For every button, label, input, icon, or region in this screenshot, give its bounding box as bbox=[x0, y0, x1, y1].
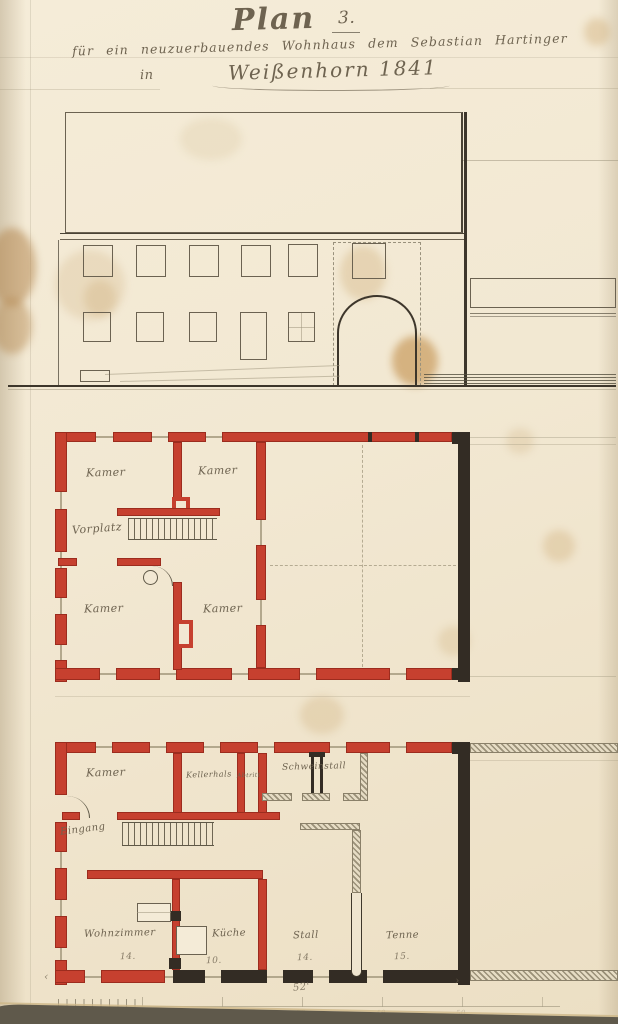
window-opening bbox=[267, 976, 283, 978]
gateway-arch bbox=[337, 295, 417, 386]
room-label-kellerhals: Kellerhals bbox=[186, 769, 232, 779]
room-label-stall: Stall bbox=[293, 930, 319, 942]
stain bbox=[543, 530, 575, 562]
window-opening bbox=[60, 852, 62, 868]
window-opening bbox=[96, 746, 112, 748]
window-opening bbox=[258, 746, 274, 748]
scale-major-tick bbox=[462, 997, 463, 1007]
ruled-line bbox=[0, 57, 618, 58]
title-underline-flourish bbox=[212, 80, 450, 91]
scale-major-tick bbox=[542, 997, 543, 1007]
ground-line bbox=[8, 385, 616, 387]
interior-wall bbox=[58, 558, 77, 566]
wall-segment bbox=[220, 742, 258, 753]
window-opening bbox=[232, 673, 248, 675]
wall-segment bbox=[55, 432, 67, 492]
wall-segment bbox=[346, 742, 390, 753]
wall-segment bbox=[406, 742, 452, 753]
forecourt-slope-line bbox=[105, 365, 340, 375]
stall-partition bbox=[311, 753, 314, 798]
ruled-line bbox=[0, 89, 160, 90]
interior-wall bbox=[237, 753, 245, 813]
wall-segment bbox=[55, 568, 67, 598]
window-opening bbox=[330, 746, 346, 748]
window-opening bbox=[204, 746, 220, 748]
pen-wall-hatched bbox=[360, 753, 368, 801]
window bbox=[83, 312, 111, 342]
wall-segment-existing bbox=[173, 970, 205, 983]
wall-tick bbox=[415, 432, 419, 442]
dim-total-width: 52' bbox=[292, 981, 310, 994]
title-plan-word: Plan bbox=[232, 1, 316, 38]
interior-wall bbox=[256, 545, 266, 600]
window-opening bbox=[367, 976, 383, 978]
room-label-tenne: Tenne bbox=[386, 930, 419, 942]
facade-right-edge bbox=[464, 112, 467, 386]
room-label-kamer-sw: Kamer bbox=[84, 601, 124, 615]
title-location-prefix: in bbox=[140, 68, 154, 83]
pencil-extension-line bbox=[470, 760, 618, 761]
wall-segment bbox=[55, 916, 67, 948]
tile-stove-line bbox=[137, 912, 171, 913]
interior-wall bbox=[258, 879, 267, 970]
pencil-extension-line bbox=[55, 696, 470, 697]
window bbox=[136, 245, 166, 277]
entrance-door bbox=[240, 312, 267, 360]
wall-segment bbox=[101, 970, 165, 983]
pencil-extension-line bbox=[463, 160, 618, 161]
wall-segment bbox=[406, 668, 452, 680]
window bbox=[189, 245, 219, 277]
existing-wall-hatched bbox=[470, 970, 618, 981]
room-label-kueche: Küche bbox=[212, 928, 246, 940]
neighbor-sill-line bbox=[470, 313, 616, 314]
room-label-kamer: Kamer bbox=[86, 765, 126, 779]
cellar-window bbox=[80, 370, 110, 382]
wall-segment bbox=[168, 432, 206, 442]
wall-segment bbox=[55, 742, 67, 795]
scale-major-tick bbox=[222, 997, 223, 1007]
plan-number-underline bbox=[332, 32, 360, 33]
wall-segment bbox=[55, 970, 85, 983]
window-opening bbox=[165, 976, 173, 978]
window-opening bbox=[60, 948, 62, 960]
window bbox=[189, 312, 217, 342]
dim-tenne: 15. bbox=[394, 952, 410, 962]
interior-wall bbox=[256, 442, 266, 520]
stain bbox=[300, 696, 344, 734]
door-opening bbox=[260, 520, 262, 545]
interior-wall bbox=[117, 508, 220, 516]
wall-segment bbox=[316, 668, 390, 680]
forecourt-slope-line bbox=[120, 376, 340, 382]
window bbox=[136, 312, 164, 342]
dim-stall: 14. bbox=[297, 953, 313, 963]
window-opening bbox=[60, 492, 62, 509]
window-opening bbox=[60, 645, 62, 660]
pen-wall-hatched bbox=[302, 793, 330, 801]
window-opening bbox=[205, 976, 221, 978]
interior-wall bbox=[258, 753, 267, 813]
existing-wall bbox=[458, 432, 470, 682]
pen-wall-hatched bbox=[352, 830, 361, 893]
paper-right-edge-shadow bbox=[598, 0, 618, 1024]
stove-circle bbox=[143, 570, 158, 585]
dim-kueche: 10. bbox=[206, 956, 222, 966]
wall-tick bbox=[368, 432, 372, 442]
pen-wall-hatched bbox=[300, 823, 360, 830]
wall-segment bbox=[55, 509, 67, 552]
window-opening bbox=[60, 598, 62, 614]
wall-segment-existing bbox=[221, 970, 267, 983]
room-label-kamer-nw: Kamer bbox=[86, 465, 126, 479]
interior-wall bbox=[256, 625, 266, 668]
window-opening bbox=[152, 436, 168, 438]
neighbor-sill-line bbox=[470, 316, 616, 317]
wall-segment bbox=[55, 614, 67, 645]
scale-major-tick bbox=[302, 997, 303, 1007]
window-opening bbox=[85, 976, 101, 978]
room-label-wohnzimmer: Wohnzimmer bbox=[84, 927, 156, 940]
dim-arrow-right: › bbox=[455, 974, 460, 987]
title-plan-number: 3. bbox=[338, 8, 356, 28]
paper-left-edge-shadow bbox=[0, 0, 26, 1024]
window-opening bbox=[390, 673, 406, 675]
stain bbox=[506, 428, 534, 454]
pen-wall-hatched bbox=[262, 793, 292, 801]
wall-segment bbox=[166, 742, 204, 753]
existing-wall-hatched bbox=[470, 743, 618, 753]
window-opening bbox=[100, 673, 116, 675]
interior-wall bbox=[117, 558, 161, 566]
wall-segment bbox=[113, 432, 152, 442]
room-label-schweinstall: Schweinstall bbox=[282, 761, 346, 773]
wall-segment bbox=[55, 868, 67, 900]
eaves-band bbox=[60, 233, 466, 240]
facade-left-edge bbox=[58, 240, 59, 386]
scale-major-tick bbox=[382, 997, 383, 1007]
wall-segment bbox=[248, 668, 300, 680]
window-opening bbox=[313, 976, 329, 978]
wall-segment bbox=[116, 668, 160, 680]
room-label-vorplatz: Vorplatz bbox=[72, 520, 123, 536]
dim-wohnzimmer: 14. bbox=[120, 952, 136, 962]
room-label-kamer-se: Kamer bbox=[203, 601, 243, 615]
kitchen-hearth bbox=[176, 926, 207, 955]
interior-wall bbox=[172, 879, 180, 970]
wall-segment bbox=[55, 668, 100, 680]
scanned-plan-sheet: Plan 3. für ein neuzuerbauendes Wohnhaus… bbox=[0, 0, 618, 1024]
window bbox=[288, 244, 318, 277]
hearth-block bbox=[169, 958, 181, 969]
room-label-abtritt: Abtritt bbox=[237, 772, 261, 780]
interior-wall bbox=[117, 812, 280, 820]
window-opening bbox=[150, 746, 166, 748]
staircase bbox=[122, 822, 214, 846]
pencil-extension-line bbox=[470, 437, 616, 438]
interior-wall bbox=[173, 753, 182, 813]
window-opening bbox=[206, 436, 222, 438]
wall-segment bbox=[176, 668, 232, 680]
room-label-kamer-ne: Kamer bbox=[198, 463, 238, 477]
feeding-trough bbox=[351, 893, 362, 977]
window-opening bbox=[96, 436, 113, 438]
wall-segment bbox=[112, 742, 150, 753]
pencil-extension-line bbox=[470, 444, 616, 445]
dim-arrow-left: ‹ bbox=[44, 970, 49, 983]
dashed-line bbox=[362, 445, 363, 667]
interior-wall bbox=[87, 870, 263, 879]
window-opening bbox=[300, 673, 316, 675]
neighbor-window-outline bbox=[470, 278, 616, 308]
title-subtitle: für ein neuzuerbauendes Wohnhaus dem Seb… bbox=[72, 31, 568, 59]
window-opening bbox=[390, 746, 406, 748]
existing-wall bbox=[458, 742, 470, 985]
chimney bbox=[175, 620, 193, 648]
stall-partition bbox=[320, 753, 323, 798]
window-opening bbox=[160, 673, 176, 675]
roof-outline bbox=[65, 112, 463, 233]
pencil-extension-line bbox=[470, 676, 616, 677]
stain bbox=[0, 298, 32, 354]
stain bbox=[584, 18, 610, 46]
dashed-line bbox=[270, 565, 456, 566]
window bbox=[83, 245, 113, 277]
fold-line bbox=[30, 0, 31, 1008]
ruled-line bbox=[430, 88, 618, 89]
window bbox=[241, 245, 271, 277]
cross-window-transom bbox=[289, 327, 314, 328]
ground-line-secondary bbox=[8, 389, 616, 390]
door-opening bbox=[260, 600, 262, 625]
interior-wall bbox=[62, 812, 80, 820]
staircase bbox=[128, 518, 217, 540]
window-opening bbox=[60, 900, 62, 916]
